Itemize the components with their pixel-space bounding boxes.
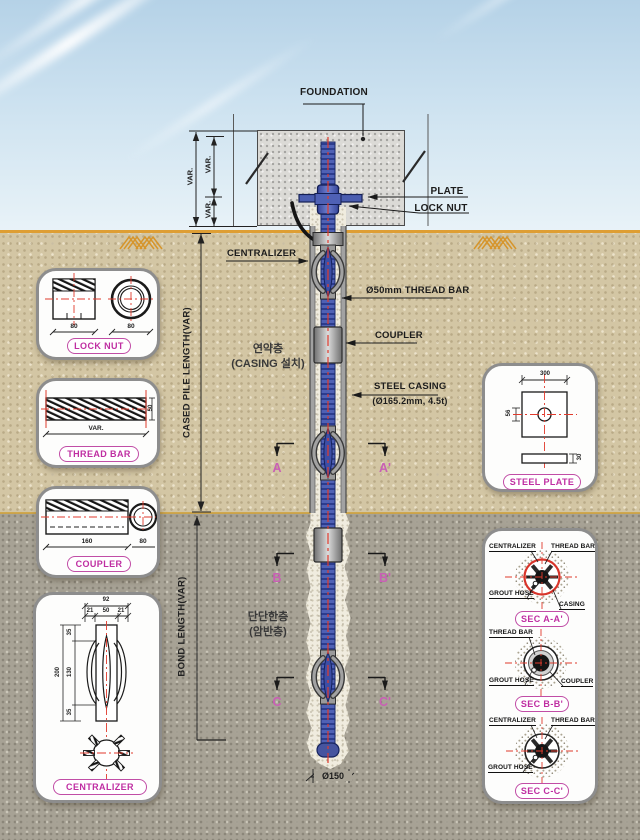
- steel-casing-label: STEEL CASING: [374, 382, 440, 392]
- coupler-title: COUPLER: [67, 556, 131, 572]
- sec-a-centralizer-label: CENTRALIZER: [489, 543, 536, 552]
- bottom-diameter-label: Ø150: [314, 771, 352, 781]
- steel-plate-title: STEEL PLATE: [503, 474, 581, 490]
- coupler-label: COUPLER: [375, 331, 419, 341]
- coupler-callout: 160 80 COUPLER: [36, 486, 160, 578]
- centralizer-label: CENTRALIZER: [227, 249, 297, 259]
- soft-layer-note: 연약층 (CASING 설치): [216, 342, 320, 372]
- sections-callout: CENTRALIZER THREAD BAR GROUT HOSE CASING…: [482, 528, 598, 804]
- sec-b-coupler-label: COUPLER: [561, 678, 593, 687]
- thread-bar-length-dim: VAR.: [84, 425, 108, 432]
- lock-nut-callout: 80 80 LOCK NUT: [36, 268, 160, 360]
- centralizer-width-dim: 92: [96, 597, 116, 603]
- centralizer-callout: 92 21 50 21 200 35 130 35 CENTRALIZER: [33, 592, 162, 803]
- centralizer-w1-dim: 21: [83, 608, 97, 614]
- lock-nut-label: LOCK NUT: [412, 203, 470, 214]
- hard-layer-line1: 단단한층: [216, 610, 320, 625]
- steel-plate-callout: 300 56 30 STEEL PLATE: [482, 363, 598, 492]
- section-mark-a-prime: A': [376, 461, 394, 475]
- steel-plate-drawing: [485, 366, 595, 489]
- centralizer-h1-dim: 35: [67, 624, 73, 640]
- sec-a-thread-bar-label: THREAD BAR: [551, 543, 595, 552]
- ground-hatch-symbol-left: [120, 237, 162, 249]
- hard-layer-line2: (암반층): [216, 625, 320, 640]
- var-upper-label: VAR.: [204, 150, 213, 180]
- drawing-sheet: FOUNDATION PLATE LOCK NUT CENTRALIZER Ø5…: [0, 0, 640, 840]
- section-mark-c-prime: C': [376, 695, 394, 709]
- sections-drawing: [485, 531, 595, 801]
- section-mark-a: A: [268, 461, 286, 475]
- centralizer-title: CENTRALIZER: [53, 779, 147, 795]
- sec-a-casing-label: CASING: [559, 601, 585, 610]
- foundation-dimensions: [189, 131, 257, 227]
- centralizer-drawing: [36, 595, 159, 800]
- sec-b-grout-hose-label: GROUT HOSE: [489, 677, 534, 686]
- coupler-dia-dim: 80: [133, 538, 153, 545]
- soft-layer-line2: (CASING 설치): [216, 357, 320, 372]
- foundation-label: FOUNDATION: [274, 87, 394, 98]
- thread-bar-dia-dim: 50: [148, 400, 154, 416]
- steel-plate-hole-dim: 56: [506, 406, 512, 420]
- thread-bar-title: THREAD BAR: [59, 446, 139, 462]
- lock-nut-title: LOCK NUT: [67, 338, 131, 354]
- break-mark-left: [246, 153, 268, 184]
- sec-a-grout-hose-label: GROUT HOSE: [489, 590, 534, 599]
- section-mark-c: C: [268, 695, 286, 709]
- thread-bar-callout: 50 VAR. THREAD BAR: [36, 378, 160, 468]
- centralizer-height-dim: 200: [55, 659, 61, 685]
- soft-layer-line1: 연약층: [216, 342, 320, 357]
- break-mark-right: [403, 151, 425, 182]
- coupler-length-dim: 160: [75, 538, 99, 545]
- steel-plate-width-dim: 300: [534, 371, 556, 377]
- bond-length-label: BOND LENGTH(VAR): [177, 557, 188, 697]
- var-total-label: VAR.: [186, 162, 195, 192]
- sec-a-title: SEC A-A': [515, 611, 569, 627]
- plate-label: PLATE: [424, 186, 470, 197]
- steel-casing-spec: (Ø165.2mm, 4.5t): [370, 397, 450, 407]
- section-mark-b-prime: B': [376, 571, 394, 585]
- sec-b-title: SEC B-B': [515, 696, 569, 712]
- sec-c-grout-hose-label: GROUT HOSE: [488, 764, 533, 773]
- section-b-view: [505, 629, 577, 697]
- sec-c-title: SEC C-C': [515, 783, 569, 799]
- section-c-view: [506, 717, 578, 785]
- sec-c-centralizer-label: CENTRALIZER: [489, 717, 536, 726]
- centralizer-h3-dim: 35: [67, 704, 73, 720]
- centralizer-w3-dim: 21: [114, 608, 128, 614]
- hard-layer-note: 단단한층 (암반층): [216, 610, 320, 640]
- thread-bar-label: Ø50mm THREAD BAR: [366, 286, 456, 296]
- lock-nut-side-dim: 80: [64, 323, 84, 330]
- steel-plate-thickness-dim: 30: [577, 450, 583, 464]
- section-mark-b: B: [268, 571, 286, 585]
- ground-hatch-symbol-right: [474, 237, 516, 249]
- sec-b-thread-bar-label: THREAD BAR: [489, 629, 533, 638]
- length-dimensions: [192, 234, 226, 741]
- var-lower-label: VAR.: [204, 195, 213, 225]
- centralizer-w2-dim: 50: [99, 608, 113, 614]
- sec-c-thread-bar-label: THREAD BAR: [551, 717, 595, 726]
- centralizer-h2-dim: 130: [67, 664, 73, 680]
- cased-pile-length-label: CASED PILE LENGTH(VAR): [182, 293, 193, 453]
- lock-nut-round-dim: 80: [121, 323, 141, 330]
